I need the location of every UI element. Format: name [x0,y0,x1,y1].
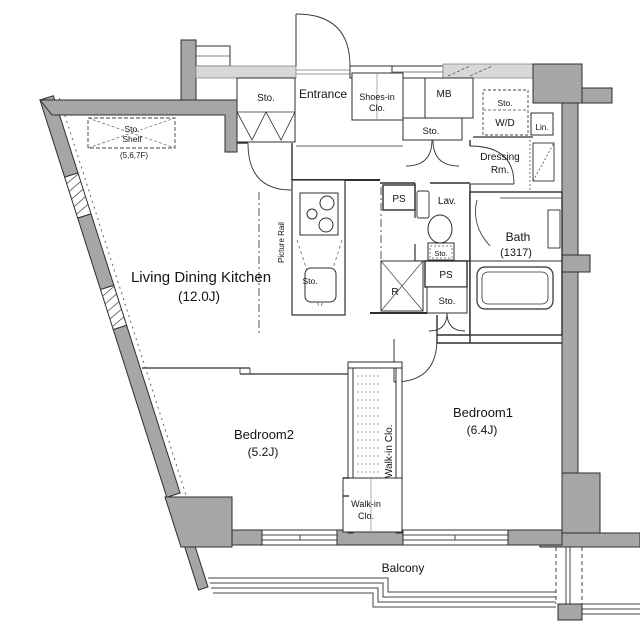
mb-label: MB [437,89,452,100]
walkin-vertical-label: Walk-in Clo. [384,424,395,478]
ps-upper-label: PS [392,194,406,205]
bathtub [477,267,553,309]
shoes-in-clo-label-1: Shoes-in [359,92,395,102]
walkin-label-2: Clo. [358,511,374,521]
sto-entrance-label: Sto. [257,93,275,104]
entrance-label: Entrance [299,87,347,101]
sto-kitchen-label: Sto. [302,276,317,286]
picture-rail-label: Picture Rail [277,222,286,263]
dressing-label-1: Dressing [480,152,519,163]
entrance-storage [237,78,295,142]
bedroom2-label-2: (5.2J) [248,445,279,459]
bath-label-1: Bath [506,230,531,244]
ldk-label-1: Living Dining Kitchen [131,269,271,286]
ldk-label-2: (12.0J) [178,289,220,304]
floor-plan: Sto. Entrance Shoes-in Clo. MB Sto. Sto.… [0,0,640,640]
bedroom1-label-1: Bedroom1 [453,405,513,420]
bedroom2-label-1: Bedroom2 [234,427,294,442]
lin-label: Lin. [536,123,549,132]
lav-label: Lav. [438,196,456,207]
sto-shelf-label-2: Shelf [122,134,142,144]
shoes-in-clo-label-2: Clo. [369,103,385,113]
window-bedroom1 [403,530,508,545]
refrigerator-space [381,261,423,311]
sto-shelf-floors-label: (5,6,7F) [120,151,148,160]
bath-label-2: (1317) [500,247,532,259]
walkin-label-1: Walk-in [351,499,381,509]
sto-hall-label: Sto. [423,126,440,137]
dressing-label-2: Rm. [491,165,509,176]
sto-shelf-label-1: Sto. [124,124,139,134]
sto-toilet-label: Sto. [434,249,447,258]
sto-wd-label: Sto. [497,98,512,108]
balcony-label: Balcony [382,561,425,575]
wd-label: W/D [495,118,514,129]
sto-corridor-label: Sto. [439,296,456,307]
ps-lower-label: PS [439,270,453,281]
floor-plan-page: Sto. Entrance Shoes-in Clo. MB Sto. Sto.… [0,0,640,640]
stove [300,193,338,235]
bath-counter [548,210,560,248]
washbasin [417,191,429,218]
fridge-label: R [391,287,398,298]
bedroom1-label-2: (6.4J) [467,423,498,437]
window-bedroom2 [262,530,337,545]
